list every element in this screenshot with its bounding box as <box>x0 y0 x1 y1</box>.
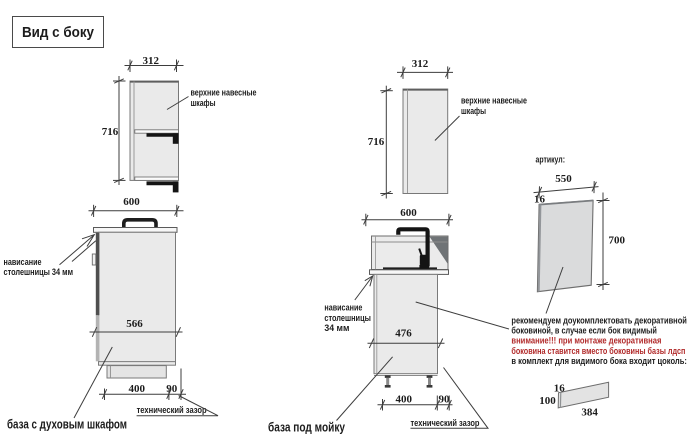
svg-text:312: 312 <box>412 58 429 70</box>
svg-text:база с духовым шкафом: база с духовым шкафом <box>7 416 127 431</box>
svg-text:600: 600 <box>123 196 140 208</box>
svg-text:шкафы: шкафы <box>191 98 216 109</box>
svg-text:600: 600 <box>400 207 417 219</box>
svg-text:в комплект для видимого бока в: в комплект для видимого бока входит цоко… <box>511 356 687 367</box>
svg-text:технический зазор: технический зазор <box>411 418 480 429</box>
svg-text:16: 16 <box>554 383 566 395</box>
svg-text:400: 400 <box>129 383 146 395</box>
svg-text:716: 716 <box>102 126 119 138</box>
svg-text:технический зазор: технический зазор <box>137 405 207 416</box>
svg-text:566: 566 <box>126 318 143 330</box>
svg-text:700: 700 <box>609 235 626 247</box>
svg-text:716: 716 <box>368 136 385 148</box>
svg-text:90: 90 <box>439 394 451 406</box>
svg-text:база под мойку: база под мойку <box>268 419 346 434</box>
svg-text:100: 100 <box>539 395 556 407</box>
svg-text:34 мм: 34 мм <box>324 323 349 334</box>
svg-text:шкафы: шкафы <box>461 106 486 117</box>
svg-text:400: 400 <box>396 394 413 406</box>
svg-text:384: 384 <box>581 407 598 419</box>
svg-text:столешницы 34 мм: столешницы 34 мм <box>4 267 74 278</box>
svg-text:90: 90 <box>166 383 178 395</box>
svg-text:550: 550 <box>555 173 572 185</box>
svg-text:артикул:: артикул: <box>536 155 566 166</box>
svg-text:476: 476 <box>395 328 412 340</box>
svg-text:Вид с боку: Вид с боку <box>22 24 95 41</box>
